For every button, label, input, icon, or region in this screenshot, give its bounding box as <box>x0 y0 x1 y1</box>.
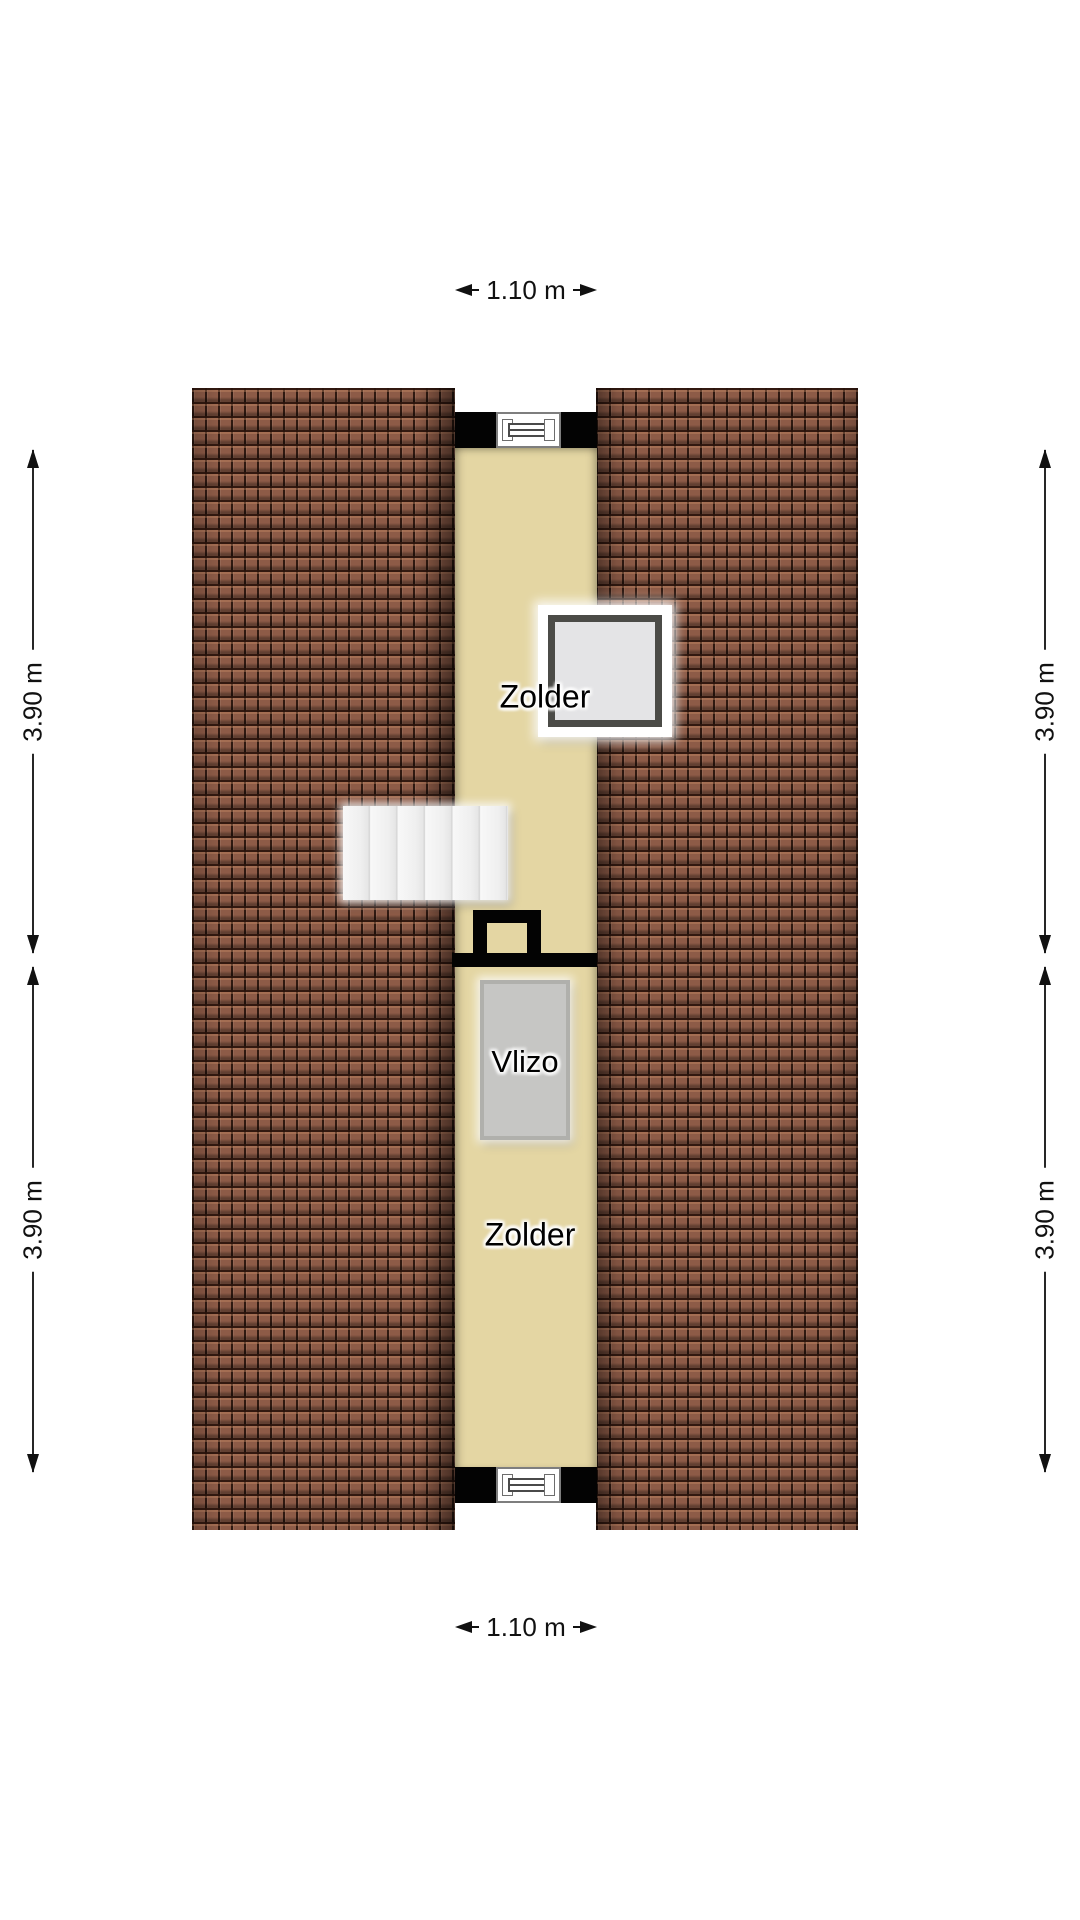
roof-right <box>596 388 858 1530</box>
dimension-left-lower: 3.90 m <box>32 967 34 1472</box>
window-post <box>544 1474 555 1496</box>
dimension-value: 3.90 m <box>1027 1168 1064 1272</box>
arrow-left-icon <box>455 1621 472 1633</box>
window-top <box>496 412 561 448</box>
dimension-line <box>573 289 580 291</box>
arrow-right-icon <box>580 1621 597 1633</box>
dimension-right-lower: 3.90 m <box>1044 967 1046 1472</box>
skylight <box>538 605 672 737</box>
dimension-value: 3.90 m <box>15 1168 52 1272</box>
floorplan-canvas: Zolder Vlizo Zolder 1.10 m 1.10 m 3.90 m… <box>0 0 1080 1920</box>
arrow-right-icon <box>580 284 597 296</box>
dimension-line <box>472 289 479 291</box>
arrow-left-icon <box>455 284 472 296</box>
stair-opening-guard-right <box>527 910 541 956</box>
room-label-zolder-upper: Zolder <box>500 679 591 716</box>
window-glass <box>508 423 549 437</box>
room-label-vlizo: Vlizo <box>491 1044 558 1080</box>
stair-opening-guard-left <box>473 910 487 956</box>
roof-left <box>192 388 455 1530</box>
dimension-value: 3.90 m <box>1027 650 1064 754</box>
dimension-line <box>573 1626 580 1628</box>
dimension-left-upper: 3.90 m <box>32 450 34 953</box>
window-post <box>544 419 555 441</box>
room-label-zolder-lower: Zolder <box>485 1217 576 1254</box>
dimension-right-upper: 3.90 m <box>1044 450 1046 953</box>
window-bottom <box>496 1467 561 1503</box>
dimension-top-width: 1.10 m <box>455 276 597 304</box>
staircase <box>343 806 508 900</box>
dimension-value: 1.10 m <box>479 275 573 306</box>
dimension-line <box>472 1626 479 1628</box>
dimension-value: 1.10 m <box>479 1612 573 1643</box>
dimension-value: 3.90 m <box>15 650 52 754</box>
window-glass <box>508 1478 549 1492</box>
dimension-bottom-width: 1.10 m <box>455 1613 597 1641</box>
